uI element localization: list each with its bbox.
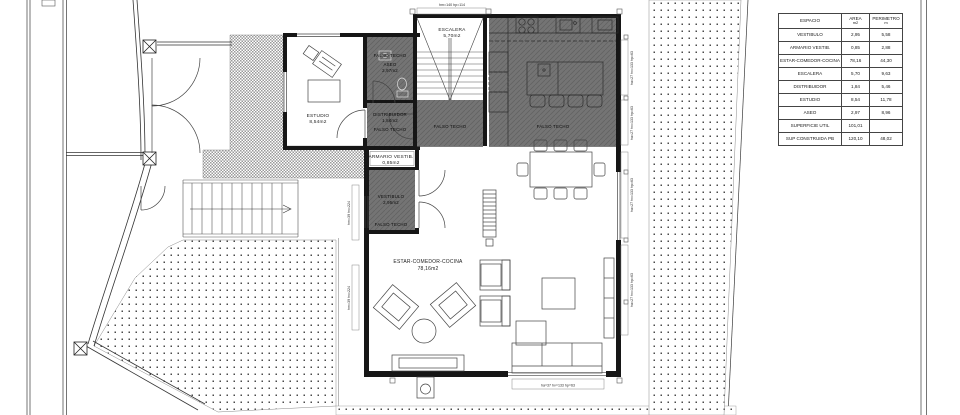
chair [534, 188, 547, 199]
armchair [430, 283, 475, 328]
desk [308, 80, 340, 102]
dim-side-a: hm=39 hv=224 [347, 201, 351, 225]
table-row: DISTRIBUIDOR 1,84 5,46 [779, 81, 903, 94]
dim-top: hm=140 hp=114 [439, 3, 465, 7]
dim-bottom: ha=37 hv=133 hp=63 [541, 384, 575, 388]
table-header-row: ESPACIO AREAm2 PERIMETROm [779, 14, 903, 29]
dim-right-d: ha=27 hv=133 hp=63 [630, 273, 634, 307]
table-header-area: AREAm2 [842, 14, 870, 29]
room-label-estar: ESTAR-COMEDOR-COCINA [393, 259, 463, 265]
chair [594, 163, 605, 176]
table-row: ESCALERA 5,70 9,63 [779, 68, 903, 81]
dining-table [530, 152, 592, 187]
table-row: SUP CONSTRUIDA PB 120,10 48,02 [779, 133, 903, 146]
ceiling-label-distribuidor: FALSO TECHO [374, 127, 407, 132]
dim-right-c: ha=27 hv=133 hp=63 [630, 178, 634, 212]
ceiling-label-stair: FALSO TECHO [434, 124, 467, 129]
ceiling-label-aseo: FALSO TECHO [374, 53, 407, 58]
under-stair-zone [417, 100, 483, 146]
armchair [480, 296, 510, 326]
floor-plan-sheet: ESCALERA 5,70m2 ESTUDIO 8,54m2 FALSO TEC… [0, 0, 960, 415]
room-label-vestibulo: VESTIBULO [378, 194, 405, 199]
room-label-distribuidor: DISTRIBUIDOR [373, 112, 407, 117]
room-label-escalera: ESCALERA [438, 27, 466, 33]
sheet-mark [42, 0, 55, 6]
table-row: ARMARIO VESTIB. 0,85 2,88 [779, 42, 903, 55]
room-area-vestibulo: 2,95m2 [383, 200, 399, 205]
paved-terrace [94, 0, 741, 415]
chair [554, 188, 567, 199]
room-area-armario: 0,85m2 [382, 160, 399, 166]
tv-cabinet [392, 355, 464, 371]
sofa [512, 321, 602, 373]
ceiling-label-vestibulo: FALSO TECHO [375, 222, 408, 227]
dining-set [517, 140, 605, 199]
chair [574, 188, 587, 199]
room-area-escalera: 5,70m2 [443, 33, 460, 39]
round-coffee-table [412, 319, 436, 343]
table-header-espacio: ESPACIO [779, 14, 842, 29]
room-area-distribuidor: 1,84m2 [382, 118, 398, 123]
room-area-estar: 78,16m2 [418, 266, 439, 272]
room-label-aseo: ASEO [383, 62, 396, 67]
room-label-estudio: ESTUDIO [307, 113, 330, 119]
areas-table: ESPACIO AREAm2 PERIMETROm VESTIBULO 2,95… [778, 13, 903, 146]
chimney-flue [421, 384, 431, 394]
dim-right-b: ha=27 hv=133 hp=63 [630, 106, 634, 140]
table-row: ESTAR-COMEDOR-COCINA 78,16 44,30 [779, 55, 903, 68]
property-boundary-left [27, 0, 67, 415]
room-label-armario: ARMARIO VESTIB. [368, 154, 413, 160]
chimney [417, 377, 434, 398]
coffee-table [542, 278, 575, 309]
armchair [480, 260, 510, 290]
ceiling-label-kitchen: FALSO TECHO [537, 124, 570, 129]
exterior-stairs [183, 180, 298, 237]
entrance-gate-swings [141, 58, 200, 210]
table-row: SUPERFICIE UTIL 101,01 [779, 120, 903, 133]
distribuidor-zone [367, 103, 413, 146]
table-row: VESTIBULO 2,95 5,58 [779, 29, 903, 42]
table-row: ESTUDIO 8,54 11,78 [779, 94, 903, 107]
dim-side-b: hm=39 hv=224 [347, 286, 351, 310]
estudio-furniture [303, 45, 341, 102]
room-area-estudio: 8,54m2 [309, 119, 326, 125]
chaise [516, 321, 546, 345]
table-header-perimetro: PERIMETROm [870, 14, 903, 29]
chair [517, 163, 528, 176]
room-area-aseo: 2,97m2 [382, 68, 398, 73]
armchair [373, 285, 418, 330]
table-row: ASEO 2,97 8,96 [779, 107, 903, 120]
dim-right-a: ha=27 hv=133 hp=63 [630, 51, 634, 85]
